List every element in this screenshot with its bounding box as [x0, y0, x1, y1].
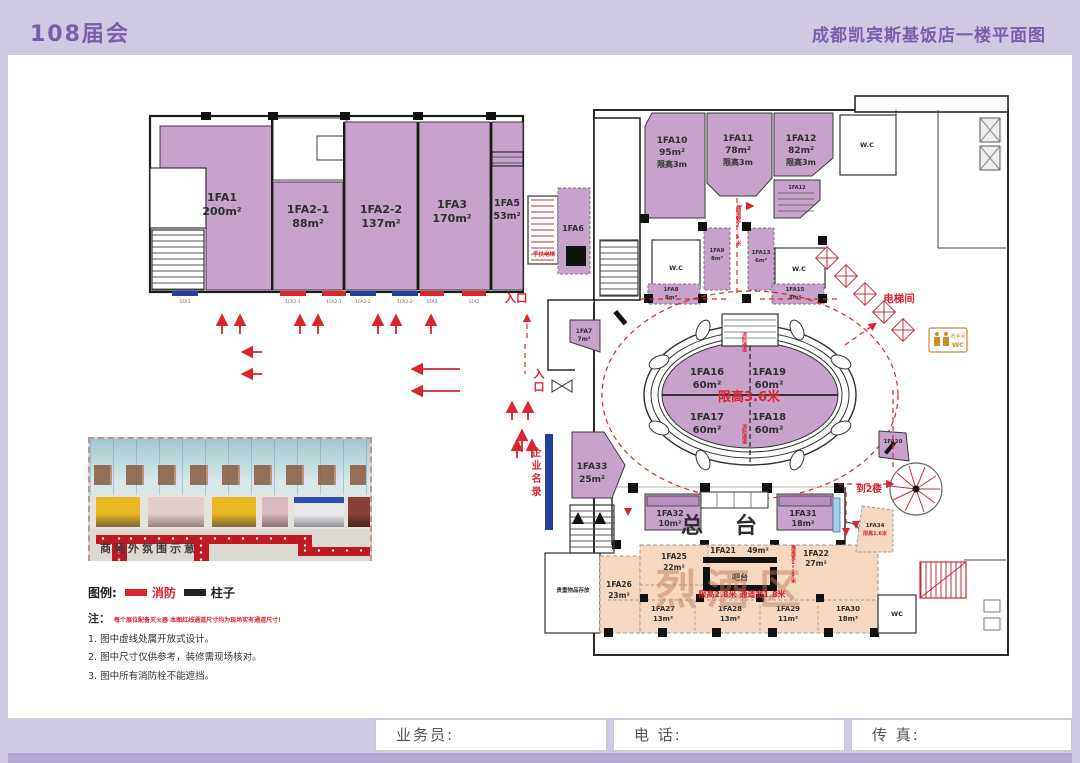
front-desk-label: 总台	[681, 513, 789, 539]
room-area: 200m²	[202, 205, 241, 218]
restroom-label: 洗手间	[950, 333, 965, 340]
bottom-strip	[8, 753, 1072, 763]
room-label: 1FA8	[663, 287, 678, 293]
room-limit: 限高3m	[786, 157, 816, 167]
room-area: 11m²	[778, 615, 798, 623]
aisle-width-18-label: 通道宽1.8米	[790, 545, 795, 583]
hydrant-tag: 1FA5	[469, 299, 480, 305]
room-area: 170m²	[432, 212, 471, 225]
photo-storefronts	[90, 495, 370, 529]
stairwell-left-lower-icon	[152, 230, 204, 290]
room-label: 1FA1	[207, 191, 237, 204]
hydrant-tag: 1FA2-1	[285, 299, 301, 305]
room-1FA6-block	[566, 246, 586, 266]
pillar-swatch	[184, 589, 206, 596]
room-area: 53m²	[493, 211, 520, 222]
phone-label: 电 话:	[614, 720, 844, 751]
room-label: 1FA15	[786, 287, 805, 293]
hydrant-tag: 1FA2-1	[326, 299, 342, 305]
room-area: 137m²	[361, 217, 400, 230]
room-area: 88m²	[292, 217, 324, 230]
escalator-label: 手扶电梯	[533, 250, 556, 258]
note-item: 3. 图中所有消防栓不能遮挡。	[88, 668, 281, 682]
stair-room-hatch-icon	[778, 192, 814, 216]
fire-lane-label: 消防通道	[741, 424, 746, 444]
room-area: 49m²	[747, 546, 769, 555]
room-label: 1FA20	[884, 439, 903, 445]
room-area: 18m²	[792, 519, 815, 528]
fire-lane-label: 消防通道	[741, 332, 746, 352]
legend-fire-label: 消防	[152, 586, 176, 600]
stairwell-left-upper	[150, 168, 206, 228]
room-label: 1FA31	[789, 509, 817, 518]
spiral-stair-icon	[890, 463, 942, 515]
room-area: 13m²	[720, 615, 740, 623]
hydrant-tag: 1FA2-2	[355, 299, 371, 305]
legend-pillar-label: 柱子	[211, 586, 235, 600]
room-label: 1FA19	[752, 367, 786, 378]
room-label: 1FA9	[709, 248, 724, 254]
room-area: 6m²	[755, 257, 768, 264]
wc-label: W.C	[860, 141, 874, 149]
room-limit: 限高3m	[657, 159, 687, 169]
exterior-photo: 商场外氛围示意	[88, 437, 372, 561]
room-area: 23m²	[608, 591, 630, 600]
room-area: 18m²	[838, 615, 858, 623]
hydrant-tag: 1FA3	[427, 299, 438, 305]
hydrant-tag: 1FA1	[180, 299, 191, 305]
room-label: 1FA32	[656, 509, 683, 518]
room-label: 1FA25	[661, 552, 687, 561]
salesperson-field: 业务员:	[375, 719, 607, 751]
photo-poster-row	[94, 465, 366, 485]
photo-kiosk	[294, 497, 344, 527]
room-label: 1FA16	[690, 367, 724, 378]
room-area: 78m²	[725, 146, 751, 156]
restroom-sign: 洗手间 WC	[929, 328, 967, 352]
photo-kiosk	[148, 497, 204, 527]
room-limit: 限高1.6米	[863, 530, 888, 537]
aisle-width-25-label: 通道宽2.5米	[734, 206, 740, 246]
room-area: 8m²	[789, 294, 802, 301]
photo-red-carpet	[298, 547, 370, 556]
aisle-limit-label: 限高2.8米 通道宽1.8米	[698, 589, 786, 599]
door-bowtie-icon	[552, 380, 572, 392]
elevator-hall-label: 电梯间	[883, 292, 915, 305]
wc-label: W.C	[669, 264, 683, 272]
valuables-label: 贵重物品存放	[556, 586, 590, 594]
company-directory-label: 企业名录	[529, 447, 539, 499]
legend: 图例:消防柱子	[88, 584, 235, 601]
room-label: 1FA22	[803, 549, 829, 558]
room-area: 8m²	[711, 255, 724, 262]
notch-inner-room	[317, 136, 345, 160]
room-label: 1FA30	[836, 605, 860, 613]
room-area: 95m²	[659, 148, 685, 158]
room-label: 1FA34	[866, 523, 885, 529]
photo-kiosk	[212, 497, 256, 527]
room-label: 1FA13	[752, 250, 771, 256]
notes-prefix: 注：	[88, 612, 110, 625]
room-label: 1FA10	[657, 136, 688, 146]
entrance-left-label: 入口	[533, 368, 544, 394]
rotunda-height-limit: 限高3.6米	[718, 389, 781, 405]
photo-caption: 商场外氛围示意	[100, 540, 198, 556]
room-area: 13m²	[653, 615, 673, 623]
hydrant-tag: 1FA2-2	[397, 299, 413, 305]
middle-stairs-icon	[600, 240, 638, 296]
room-limit: 限高3m	[723, 157, 753, 167]
directory-board	[545, 434, 553, 530]
room-label: 1FA11	[723, 134, 754, 144]
room-label: 1FA12	[786, 134, 817, 144]
room-area: 8m²	[665, 294, 678, 301]
salesperson-label: 业务员:	[376, 720, 606, 751]
to-2f-label: 到2楼	[856, 483, 882, 495]
room-label: 1FA17	[690, 412, 724, 423]
room-area: 10m²	[659, 519, 682, 528]
restroom-wc-label: WC	[952, 341, 964, 349]
fax-label: 传 真:	[852, 720, 1071, 751]
stair-room-tag: 1FA12	[788, 185, 806, 191]
entrance-top-label: 入口	[505, 291, 528, 305]
room-label: 1FA3	[437, 198, 467, 211]
room-label: 1FA6	[562, 224, 584, 233]
legend-title: 图例:	[88, 586, 117, 600]
escalator-1fa5-icon	[492, 152, 523, 166]
room-area: 60m²	[755, 425, 784, 436]
rotunda-stage	[722, 314, 778, 346]
wc-label: WC	[891, 610, 903, 618]
photo-kiosk	[262, 497, 288, 527]
room-label: 1FA18	[752, 412, 786, 423]
main-wing-top-bump	[855, 96, 1008, 112]
room-1FA34	[856, 506, 893, 552]
touchscreen-strip	[833, 498, 840, 532]
floorplan-page: 108届会 成都凯宾斯基饭店一楼平面图	[0, 0, 1080, 763]
fire-swatch	[125, 589, 147, 596]
phone-field: 电 话:	[613, 719, 845, 751]
room-label: 1FA26	[606, 580, 632, 589]
fax-field: 传 真:	[851, 719, 1072, 751]
photo-kiosk	[348, 497, 370, 527]
photo-kiosk	[96, 497, 140, 527]
stairs-left-mid-icon	[570, 505, 614, 553]
note-item: 2. 图中尺寸仅供参考，装修需现场核对。	[88, 649, 281, 663]
room-area: 25m²	[579, 475, 605, 485]
wc-label: W.C	[792, 265, 806, 273]
room-area: 82m²	[788, 146, 814, 156]
room-label: 1FA2-2	[360, 203, 402, 216]
note-item: 1. 图中虚线处属开放式设计。	[88, 631, 281, 645]
room-1FA2-1	[273, 182, 343, 290]
room-label: 1FA33	[577, 462, 608, 472]
room-label: 1FA21	[710, 546, 736, 555]
room-label: 1FA7	[576, 328, 592, 335]
room-label: 1FA2-1	[287, 203, 329, 216]
notes: 注：每个展位配备灭火器 本图红线通道尺寸均为现场实有通道尺寸! 1. 图中虚线处…	[88, 607, 281, 682]
room-area: 7m²	[577, 336, 590, 343]
room-label: 1FA5	[494, 198, 520, 209]
notes-warning: 每个展位配备灭火器 本图红线通道尺寸均为现场实有通道尺寸!	[114, 617, 281, 624]
room-area: 60m²	[693, 425, 722, 436]
